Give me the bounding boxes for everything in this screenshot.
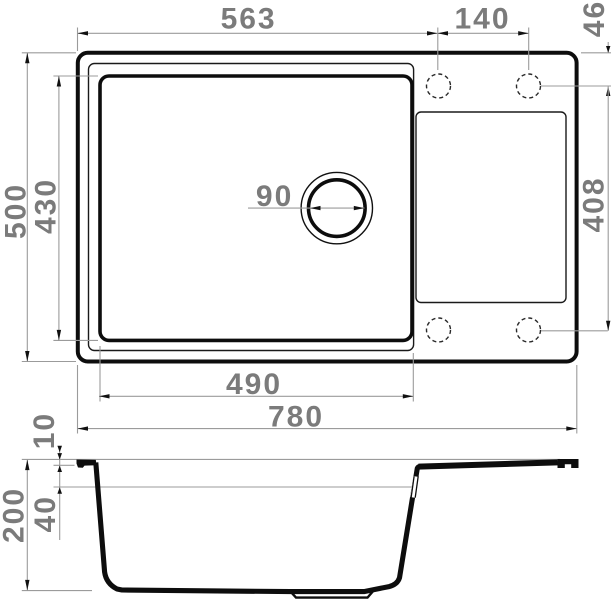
svg-text:10: 10 [28, 412, 61, 449]
svg-text:490: 490 [226, 368, 282, 401]
svg-text:40: 40 [29, 495, 62, 532]
svg-text:563: 563 [221, 3, 277, 36]
svg-text:46: 46 [578, 0, 611, 37]
svg-text:430: 430 [30, 178, 63, 234]
svg-text:200: 200 [0, 487, 30, 543]
svg-text:408: 408 [578, 176, 611, 232]
svg-text:90: 90 [256, 180, 293, 213]
svg-text:780: 780 [268, 401, 324, 434]
svg-text:500: 500 [0, 183, 32, 239]
svg-text:140: 140 [454, 3, 510, 36]
